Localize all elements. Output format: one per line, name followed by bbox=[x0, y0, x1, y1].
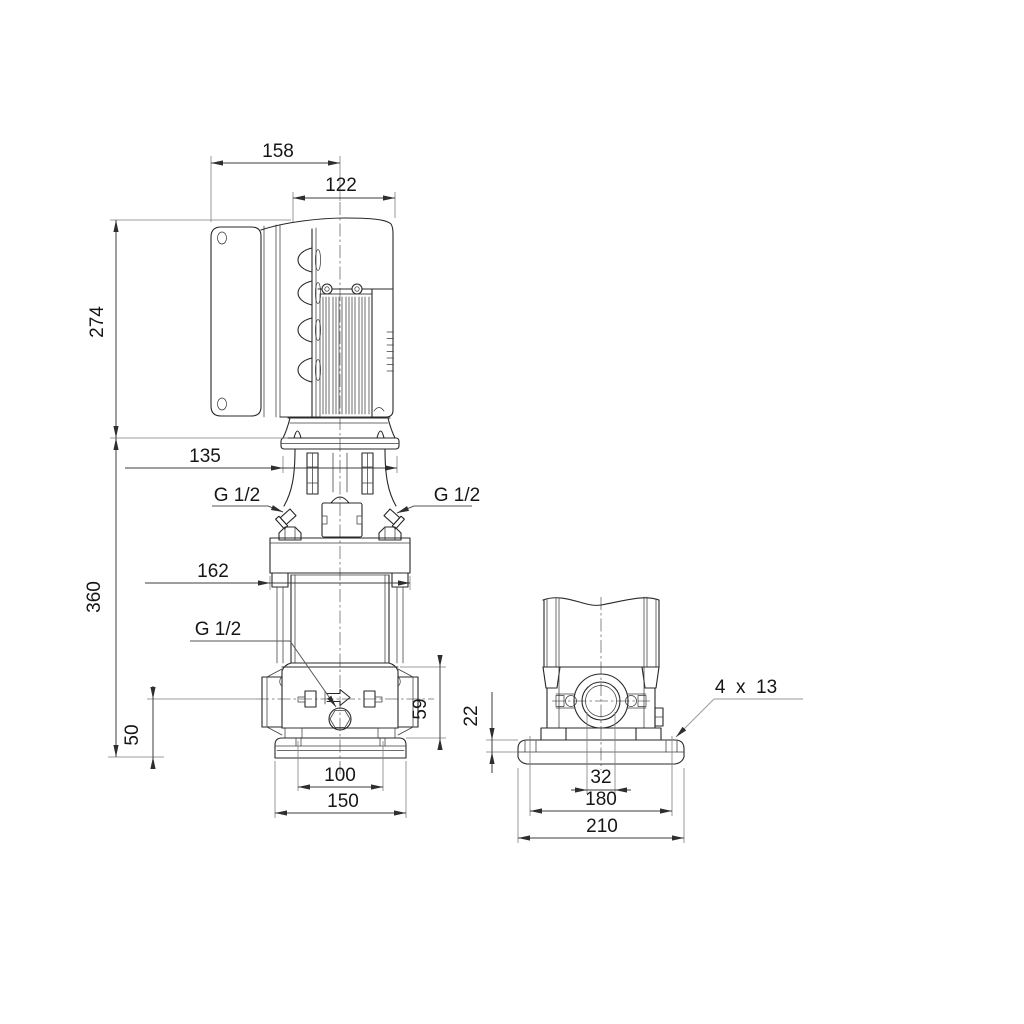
flow-arrow bbox=[327, 690, 350, 706]
dim-158-label: 158 bbox=[262, 141, 294, 162]
svg-text:G 1/2: G 1/2 bbox=[214, 485, 260, 506]
svg-text:G 1/2: G 1/2 bbox=[434, 485, 480, 506]
front-view-stool bbox=[276, 418, 405, 540]
thread-label-top-left: G 1/2 bbox=[212, 485, 283, 512]
thread-label-top-right: G 1/2 bbox=[397, 485, 480, 513]
dim-100-label: 100 bbox=[324, 765, 356, 786]
svg-text:G 1/2: G 1/2 bbox=[195, 619, 241, 640]
motor-fins bbox=[323, 297, 369, 414]
control-box bbox=[211, 227, 261, 416]
bolt-holes-label: 4 x 13 bbox=[676, 677, 803, 737]
dim-32-label: 32 bbox=[590, 767, 611, 788]
drawing-page: 158 122 274 360 135 162 50 59 100 bbox=[0, 0, 1024, 1024]
dim-150-label: 150 bbox=[327, 791, 359, 812]
suction-port bbox=[262, 669, 282, 735]
svg-text:4 x 13: 4 x 13 bbox=[715, 677, 777, 698]
dimensions-side: 22 32 180 210 4 x 13 bbox=[461, 677, 803, 843]
base-plate-front bbox=[275, 738, 406, 758]
motor-screw-right bbox=[352, 284, 362, 294]
motor-screw-left bbox=[322, 284, 332, 294]
dim-274-label: 274 bbox=[87, 306, 108, 338]
dim-50-label: 50 bbox=[122, 724, 143, 745]
dim-180-label: 180 bbox=[585, 789, 617, 810]
dim-122-label: 122 bbox=[325, 175, 357, 196]
dim-210-label: 210 bbox=[586, 816, 618, 837]
technical-drawing: 158 122 274 360 135 162 50 59 100 bbox=[0, 0, 1024, 1024]
box-screw-hole-top bbox=[218, 232, 227, 244]
coupling bbox=[322, 503, 362, 537]
dim-360-label: 360 bbox=[84, 581, 105, 613]
motor-clips bbox=[298, 248, 321, 382]
dim-59-label: 59 bbox=[410, 698, 431, 719]
seal-plug-right bbox=[383, 507, 405, 528]
dim-135-label: 135 bbox=[189, 446, 221, 467]
dim-22-label: 22 bbox=[461, 705, 482, 726]
dim-162-label: 162 bbox=[197, 561, 229, 582]
box-screw-hole-bottom bbox=[218, 398, 227, 410]
front-view-motor bbox=[211, 218, 394, 417]
motor-housing bbox=[261, 218, 393, 417]
